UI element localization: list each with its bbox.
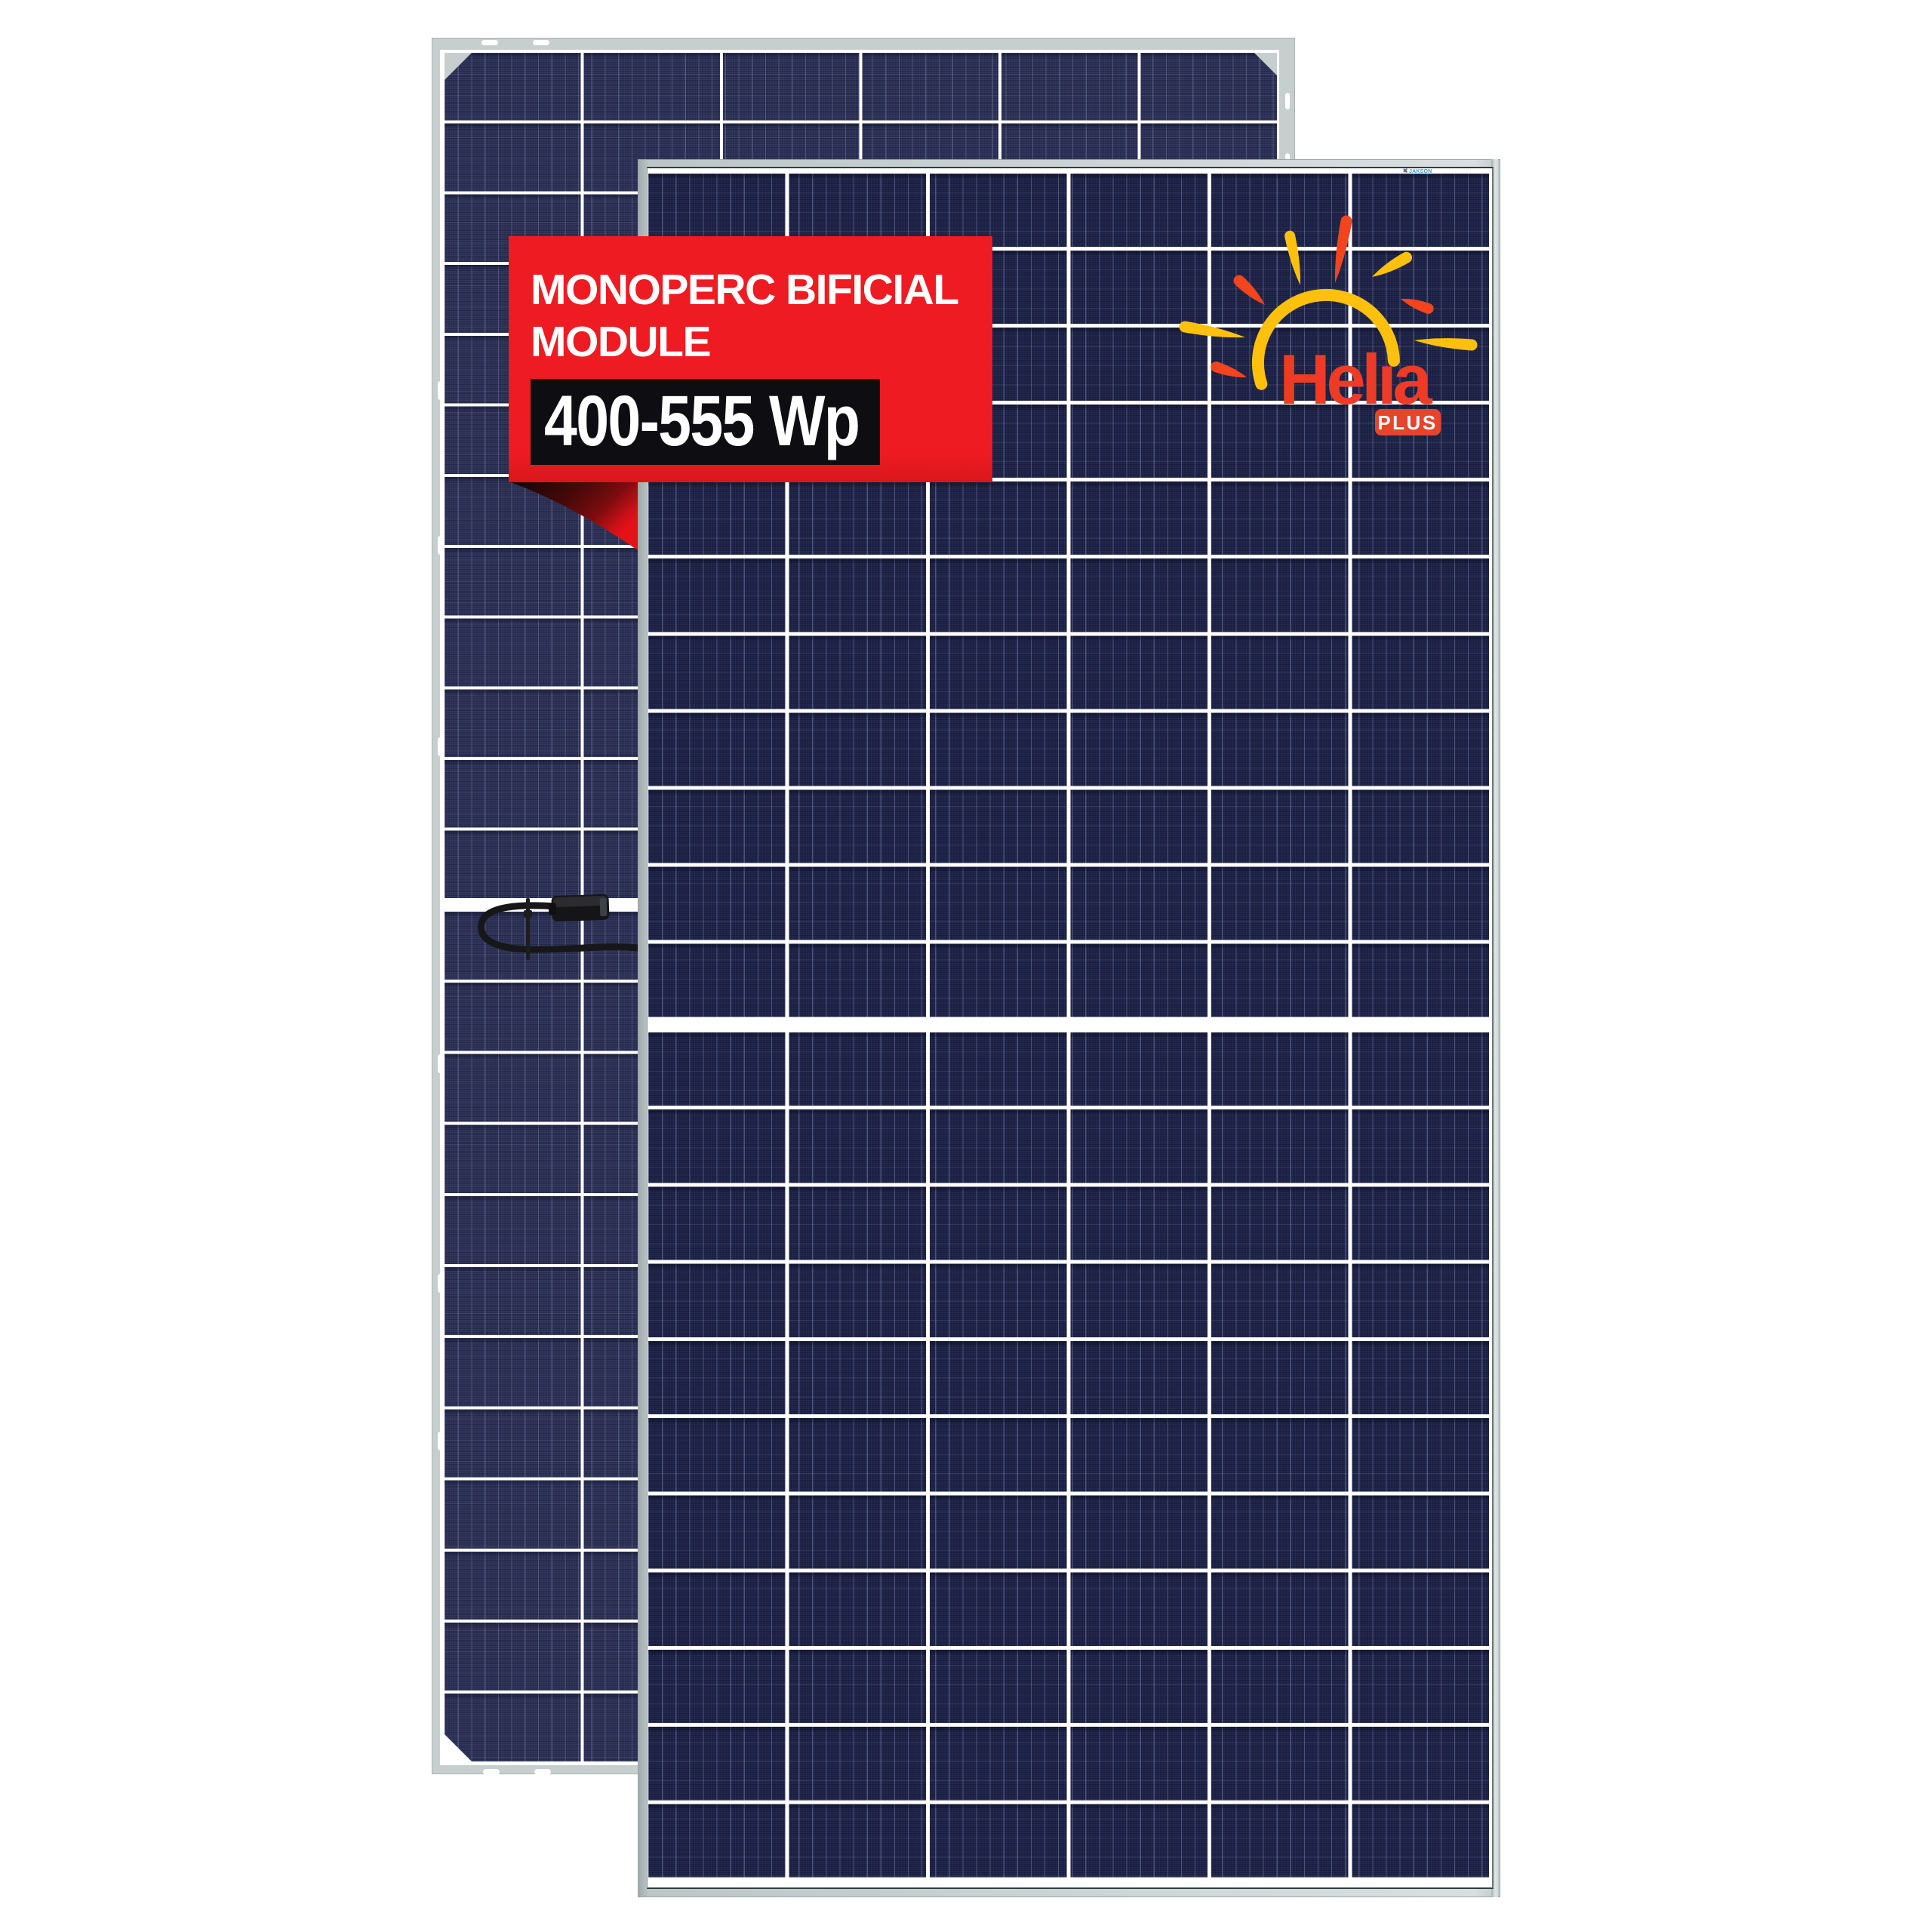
svg-text:JAKSON: JAKSON bbox=[1409, 169, 1432, 174]
svg-text:PLUS: PLUS bbox=[1377, 411, 1437, 434]
svg-text:Helıa: Helıa bbox=[1279, 340, 1432, 419]
